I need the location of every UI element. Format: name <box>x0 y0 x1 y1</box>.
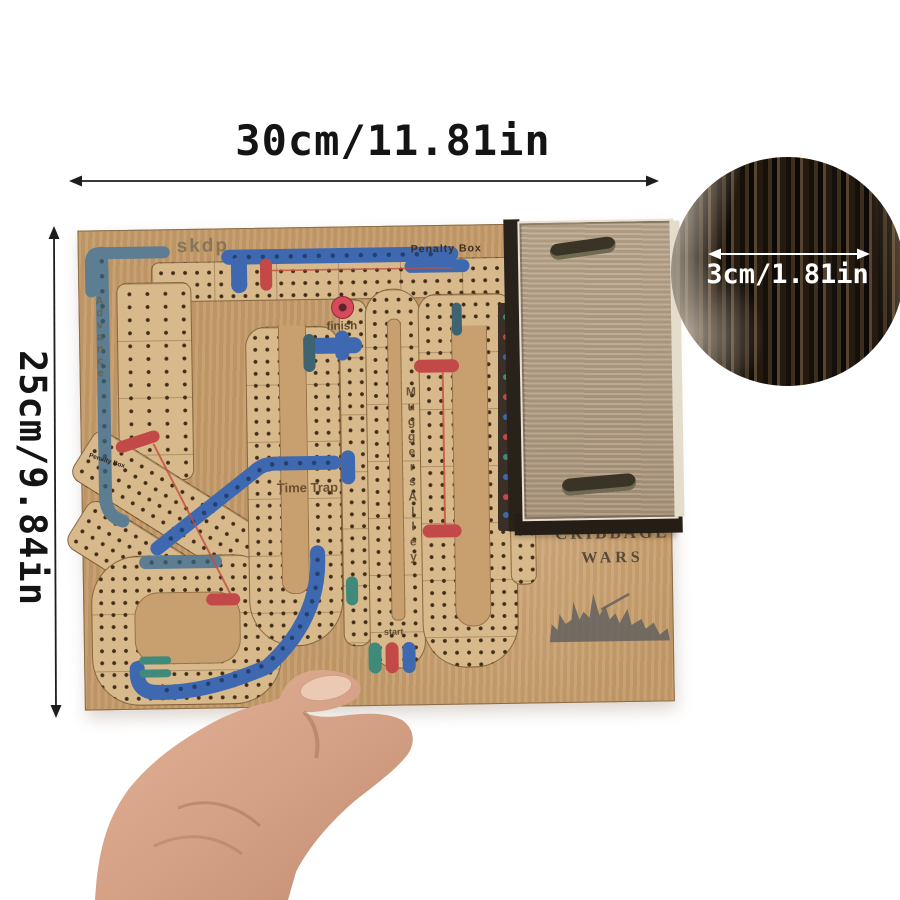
red-line <box>443 372 445 526</box>
width-dimension-label: 30cm/11.81in <box>178 116 608 165</box>
product-photo: skdp Penalty Box Advance finish Time Tra… <box>0 0 900 900</box>
label-time-trap: Time Trap <box>267 479 347 495</box>
blue-timetrap-track <box>156 463 335 549</box>
hand <box>58 658 438 900</box>
red-line <box>154 443 234 602</box>
thickness-dimension-label: 3cm/1.81in <box>671 259 900 290</box>
hand-silhouette <box>95 670 413 900</box>
soldiers-graphic <box>549 588 672 644</box>
label-skdp: skdp <box>176 235 229 258</box>
height-arrow-icon <box>43 225 65 719</box>
label-start: start <box>369 626 419 637</box>
label-penalty-box: Penalty Box <box>411 242 482 255</box>
label-finish: finish <box>312 320 372 333</box>
board-title-line2: WARS <box>538 548 686 568</box>
label-advance: Advance <box>93 295 107 435</box>
red-piece <box>122 436 154 447</box>
width-arrow-icon <box>68 170 660 192</box>
red-piece <box>421 366 453 367</box>
storage-box <box>503 210 685 535</box>
thickness-inset: 3cm/1.81in <box>671 157 900 386</box>
blue-piece <box>411 266 463 267</box>
